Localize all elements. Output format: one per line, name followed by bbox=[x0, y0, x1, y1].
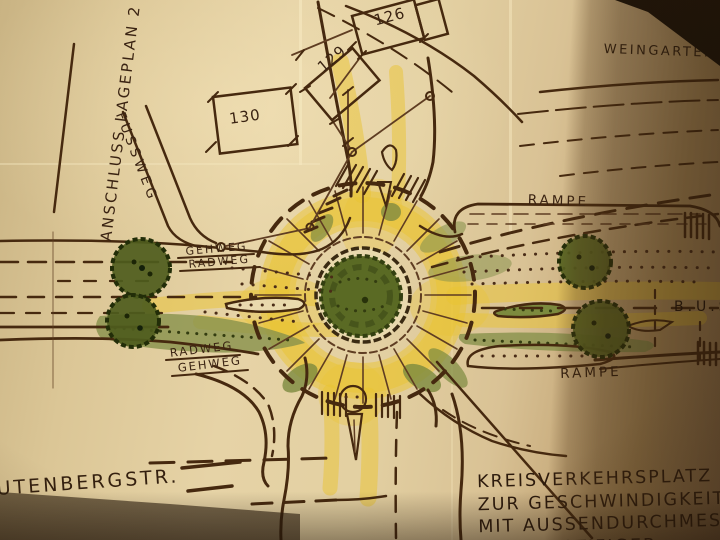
rampe-lower-label: RAMPE bbox=[560, 364, 622, 382]
street-dashes-bottom-left bbox=[182, 462, 240, 491]
plan-title-block: KREISVERKEHRSPLATZ ZUR GESCHWINDIGKEIT M… bbox=[477, 465, 720, 540]
roundabout-center-island bbox=[321, 256, 401, 336]
roundabout bbox=[251, 183, 475, 407]
photo-of-hand-drawn-roundabout-plan: ANSCHLUSS LAGEPLAN 2 FUSSWEG GEHWEG RADW… bbox=[0, 0, 720, 540]
bus-stop-label: B.U.S bbox=[674, 299, 720, 315]
site-plan-drawing bbox=[0, 0, 720, 540]
tree bbox=[107, 295, 159, 347]
tree bbox=[559, 236, 611, 288]
rampe-upper-label: RAMPE bbox=[527, 192, 589, 210]
tree bbox=[112, 239, 170, 297]
tree bbox=[573, 301, 629, 357]
